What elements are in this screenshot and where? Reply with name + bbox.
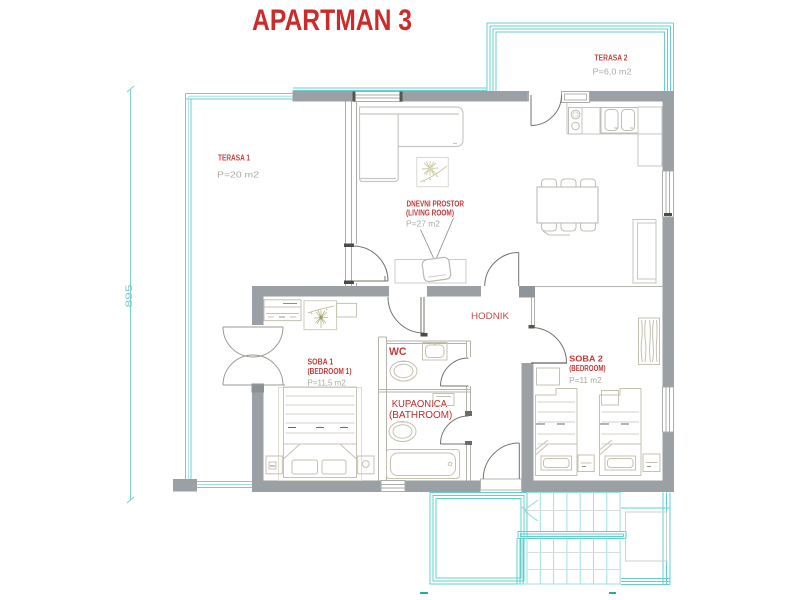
svg-text:DNEVNI PROSTOR: DNEVNI PROSTOR bbox=[407, 200, 465, 209]
svg-text:HODNIK: HODNIK bbox=[471, 311, 510, 322]
svg-text:TERASA 1: TERASA 1 bbox=[218, 154, 250, 163]
svg-text:KUPAONICA: KUPAONICA bbox=[392, 399, 448, 410]
svg-text:WC: WC bbox=[389, 346, 407, 358]
svg-text:SOBA 1: SOBA 1 bbox=[308, 358, 334, 367]
svg-text:APARTMAN 3: APARTMAN 3 bbox=[252, 4, 412, 37]
svg-text:(LIVING ROOM): (LIVING ROOM) bbox=[406, 209, 454, 218]
svg-text:P=11 m2: P=11 m2 bbox=[569, 376, 602, 385]
svg-text:TERASA 2: TERASA 2 bbox=[595, 54, 628, 63]
svg-text:P=6,0 m2: P=6,0 m2 bbox=[593, 68, 633, 77]
svg-text:(BATHROOM): (BATHROOM) bbox=[389, 410, 452, 421]
svg-text:SOBA 2: SOBA 2 bbox=[569, 354, 603, 364]
svg-text:895: 895 bbox=[124, 285, 134, 308]
svg-text:P=20 m2: P=20 m2 bbox=[217, 171, 260, 180]
svg-text:(BEDROOM 1): (BEDROOM 1) bbox=[308, 367, 352, 376]
svg-text:(BEDROOM): (BEDROOM) bbox=[569, 364, 606, 373]
svg-text:P=27 m2: P=27 m2 bbox=[406, 220, 441, 229]
svg-text:P=11,5 m2: P=11,5 m2 bbox=[308, 379, 347, 388]
